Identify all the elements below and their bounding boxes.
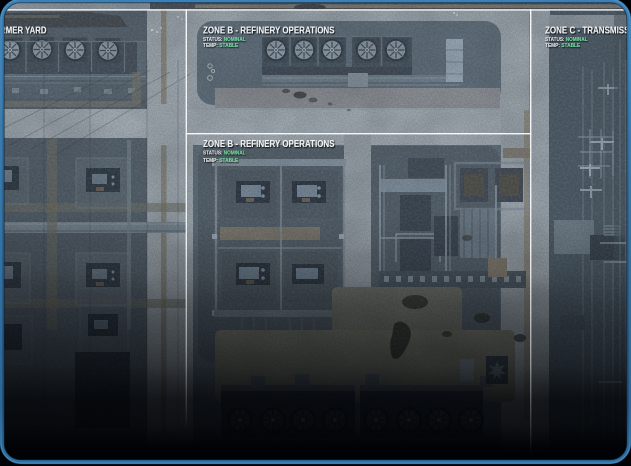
svg-text:ZONE B - REFINERY OPERATIONS: ZONE B - REFINERY OPERATIONS — [203, 139, 335, 150]
svg-text:TEMP: STABLE: TEMP: STABLE — [545, 43, 580, 49]
svg-text:TEMP: STABLE: TEMP: STABLE — [203, 43, 238, 49]
svg-text:ZONE B - REFINERY OPERATIONS: ZONE B - REFINERY OPERATIONS — [203, 25, 335, 36]
svg-text:TRANSFORMER YARD: TRANSFORMER YARD — [0, 25, 47, 37]
svg-text:TEMP: STABLE: TEMP: STABLE — [203, 158, 238, 164]
svg-text:ZONE C - TRANSMISSION: ZONE C - TRANSMISSION — [545, 25, 631, 36]
svg-text:STATUS: NOMINAL: STATUS: NOMINAL — [203, 151, 246, 157]
